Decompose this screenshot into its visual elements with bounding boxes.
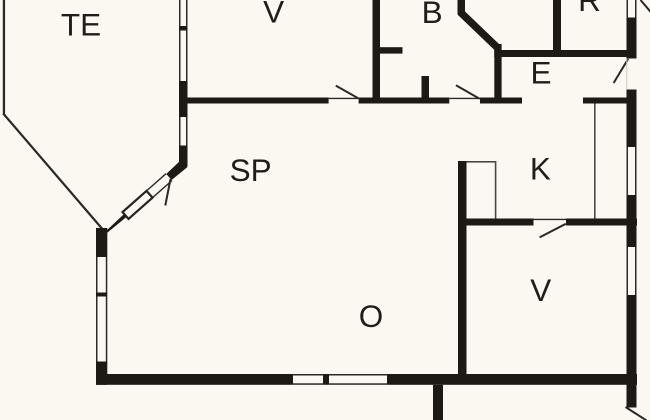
svg-text:E: E: [530, 54, 551, 90]
svg-text:SP: SP: [230, 152, 272, 188]
svg-text:R: R: [578, 0, 601, 18]
svg-text:TE: TE: [61, 6, 101, 42]
svg-text:K: K: [530, 151, 551, 187]
svg-text:B: B: [422, 0, 443, 30]
svg-text:O: O: [359, 298, 384, 334]
svg-text:V: V: [263, 0, 284, 30]
svg-text:V: V: [530, 272, 551, 308]
